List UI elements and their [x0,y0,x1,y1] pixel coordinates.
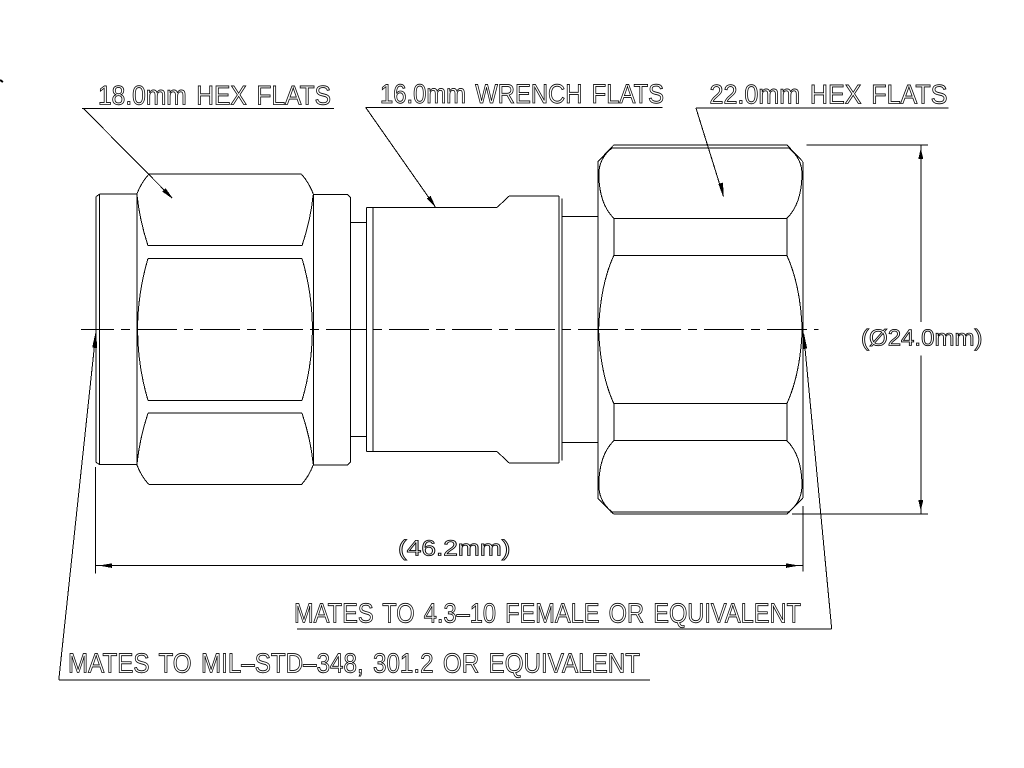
svg-text:MATES TO 4.3–10 FEMALE OR: MATES TO 4.3–10 FEMALE OR EQUIVALENT [294,598,801,629]
svg-text:18.0mm HEX FLATS: 18.0mm HEX FLATS [98,80,331,110]
svg-text:(46.2mm): (46.2mm) [398,535,511,560]
svg-text:16.0mm WRENCH FLATS: 16.0mm WRENCH FLATS [380,79,664,109]
svg-text:22.0mm HEX FLATS: 22.0mm HEX FLATS [710,80,948,110]
svg-text:(Ø24.0mm): (Ø24.0mm) [861,325,983,351]
svg-text:MATES TO MIL–STD–348, 301.2: MATES TO MIL–STD–348, 301.2 OR EQUIVALEN… [68,647,640,678]
